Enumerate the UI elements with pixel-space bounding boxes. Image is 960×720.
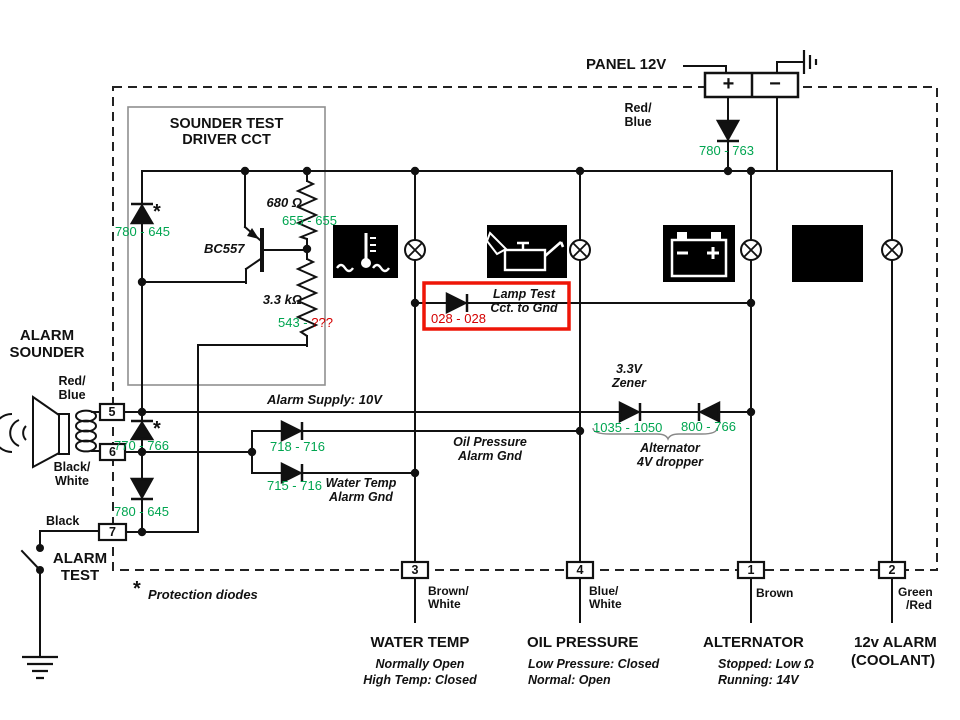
wire-transistor-collector (246, 258, 262, 283)
resistor-680-label: 680 Ω (238, 196, 302, 211)
protection-star-pin5: * (153, 419, 161, 439)
protection-footnote: Protection diodes (148, 588, 258, 603)
annotation-resistor-3k3-value: 543 - (278, 315, 311, 330)
sounder-box-title-line1: SOUNDER TEST (128, 116, 325, 132)
speaker-bottom-wire-line1: Black/ (40, 460, 104, 474)
annotation-zener-forward: 1035 - 1050 (593, 421, 662, 436)
annotation-lamp-test-diode: 028 - 028 (431, 312, 486, 327)
pin1-wire-color: Brown (756, 587, 793, 600)
speaker-cone (33, 397, 59, 467)
coolant-alarm-title: 12v ALARM (854, 635, 937, 652)
wire-alarm-test-feed (40, 531, 99, 546)
oil-gnd-line2: Alarm Gnd (444, 449, 536, 463)
alarm-sounder-title: ALARM SOUNDER (4, 328, 90, 362)
alarm-test-wire-label: Black (46, 514, 79, 528)
panel-ground-icon (804, 50, 816, 74)
schematic-drawing (0, 0, 960, 720)
transistor-label: BC557 (204, 242, 244, 257)
speaker-top-wire-line2: Blue (46, 388, 98, 402)
pin3-wire-line2: White (428, 598, 469, 611)
battery-warning-icon (663, 225, 735, 282)
lamp-test-label: Lamp Test Cct. to Gnd (483, 287, 565, 315)
alternator-title: ALTERNATOR (703, 635, 804, 652)
alarm-test-line2: TEST (48, 568, 112, 585)
battery-plus-terminal: + (705, 73, 752, 97)
pin2-wire-line1: Green (898, 586, 933, 599)
alternator-note1: Stopped: Low Ω (718, 657, 814, 671)
engine-alarm-schematic: SOUNDER TEST DRIVER CCT 680 Ω 655 - 655 … (0, 0, 960, 720)
sound-waves-icon (0, 414, 26, 452)
coil-icon (76, 411, 96, 452)
annotation-resistor-680: 655 - 655 (282, 214, 337, 229)
speaker-driver (59, 414, 69, 454)
speaker-top-wire-label: Red/ Blue (46, 374, 98, 402)
oil-pressure-title: OIL PRESSURE (527, 635, 638, 652)
junction-dots (138, 167, 755, 536)
transistor-bc557-icon (247, 228, 262, 272)
oil-pressure-lamp-icon (570, 240, 590, 260)
water-temp-title: WATER TEMP (355, 635, 485, 652)
water-temp-warning-icon (333, 225, 398, 278)
water-gnd-line2: Alarm Gnd (320, 490, 402, 504)
oil-gnd-diode-icon (282, 422, 302, 440)
panel-feed-diode-icon (717, 121, 739, 141)
pin7-number: 7 (99, 524, 126, 540)
water-gnd-line1: Water Temp (320, 476, 402, 490)
zener-line1: 3.3V (601, 362, 657, 376)
sounder-box-title: SOUNDER TEST DRIVER CCT (128, 116, 325, 148)
annotation-oil-gnd-diode: 718 - 716 (270, 440, 325, 455)
alarm-sounder-title-line2: SOUNDER (4, 345, 90, 362)
alarm-test-label: ALARM TEST (48, 551, 112, 585)
speaker-top-wire-line1: Red/ (46, 374, 98, 388)
speaker-bottom-wire-label: Black/ White (40, 460, 104, 488)
speaker-bottom-wire-line2: White (40, 474, 104, 488)
pin4-wire-line2: White (589, 598, 622, 611)
oil-pressure-warning-icon (487, 225, 567, 278)
pin6-number: 6 (100, 444, 125, 460)
alarm-sounder-title-line1: ALARM (4, 328, 90, 345)
coolant-alarm-lamp-icon (882, 240, 902, 260)
panel-title: PANEL 12V (586, 57, 666, 74)
alarm-test-switch-icon (36, 544, 44, 574)
annotation-sounder-diode: 780 - 645 (115, 225, 170, 240)
pin1-number: 1 (738, 562, 764, 578)
alarm-sounder-speaker-icon (0, 397, 96, 467)
pin3-wire-line1: Brown/ (428, 585, 469, 598)
wire-panel-ground (777, 62, 804, 73)
pin2-number: 2 (879, 562, 905, 578)
pin2-wire-color: Green /Red (898, 586, 933, 613)
blank-warning-icon (792, 225, 863, 282)
alarm-test-line1: ALARM (48, 551, 112, 568)
annotation-zener-reverse: 800 - 766 (681, 420, 736, 435)
water-temp-note1: Normally Open (355, 657, 485, 671)
pin7-diode-icon (131, 479, 153, 499)
annotation-water-gnd-diode: 715 - 716 (267, 479, 322, 494)
oil-gnd-line1: Oil Pressure (444, 435, 536, 449)
water-temp-lamp-icon (405, 240, 425, 260)
panel-wire-label: Red/ Blue (612, 101, 664, 129)
resistor-3k3-label: 3.3 kΩ (238, 293, 302, 308)
sounder-protection-diode-icon (131, 204, 153, 223)
annotation-resistor-3k3-unknown: ??? (311, 315, 333, 330)
pin5-protection-diode-icon (131, 421, 153, 439)
ground-icon (22, 657, 58, 678)
pin4-wire-line1: Blue/ (589, 585, 622, 598)
zener-line2: Zener (601, 376, 657, 390)
pin4-number: 4 (567, 562, 593, 578)
water-gnd-label: Water Temp Alarm Gnd (320, 476, 402, 504)
protection-star-sounder: * (153, 202, 161, 222)
pin4-wire-color: Blue/ White (589, 585, 622, 612)
pin3-wire-color: Brown/ White (428, 585, 469, 612)
sounder-box-title-line2: DRIVER CCT (128, 132, 325, 148)
dropper-line1: Alternator (618, 441, 722, 455)
annotation-pin7-diode: 780 - 645 (114, 505, 169, 520)
panel-wire-line2: Blue (612, 115, 664, 129)
coolant-alarm-subtitle: (COOLANT) (851, 653, 935, 670)
dropper-label: Alternator 4V dropper (618, 441, 722, 469)
pin3-number: 3 (402, 562, 428, 578)
annotation-resistor-3k3: 543 - ??? (278, 314, 333, 332)
lamp-test-diode-icon (447, 294, 467, 312)
panel-wire-line1: Red/ (612, 101, 664, 115)
dropper-line2: 4V dropper (618, 455, 722, 469)
protection-star-footnote: * (133, 579, 141, 599)
zener-label: 3.3V Zener (601, 362, 657, 390)
lamp-test-line1: Lamp Test (483, 287, 565, 301)
alternator-lamp-icon (741, 240, 761, 260)
battery-minus-terminal: − (752, 73, 798, 97)
oil-pressure-note2: Normal: Open (528, 673, 611, 687)
pin5-number: 5 (100, 404, 124, 420)
alternator-note2: Running: 14V (718, 673, 799, 687)
annotation-panel-diode: 780 - 763 (699, 144, 754, 159)
zener-diode-icon (620, 403, 640, 421)
oil-pressure-note1: Low Pressure: Closed (528, 657, 659, 671)
oil-gnd-label: Oil Pressure Alarm Gnd (444, 435, 536, 463)
water-temp-note2: High Temp: Closed (355, 673, 485, 687)
lamp-test-line2: Cct. to Gnd (483, 301, 565, 315)
pin2-wire-line2: /Red (898, 599, 933, 612)
alarm-supply-label: Alarm Supply: 10V (267, 393, 382, 408)
